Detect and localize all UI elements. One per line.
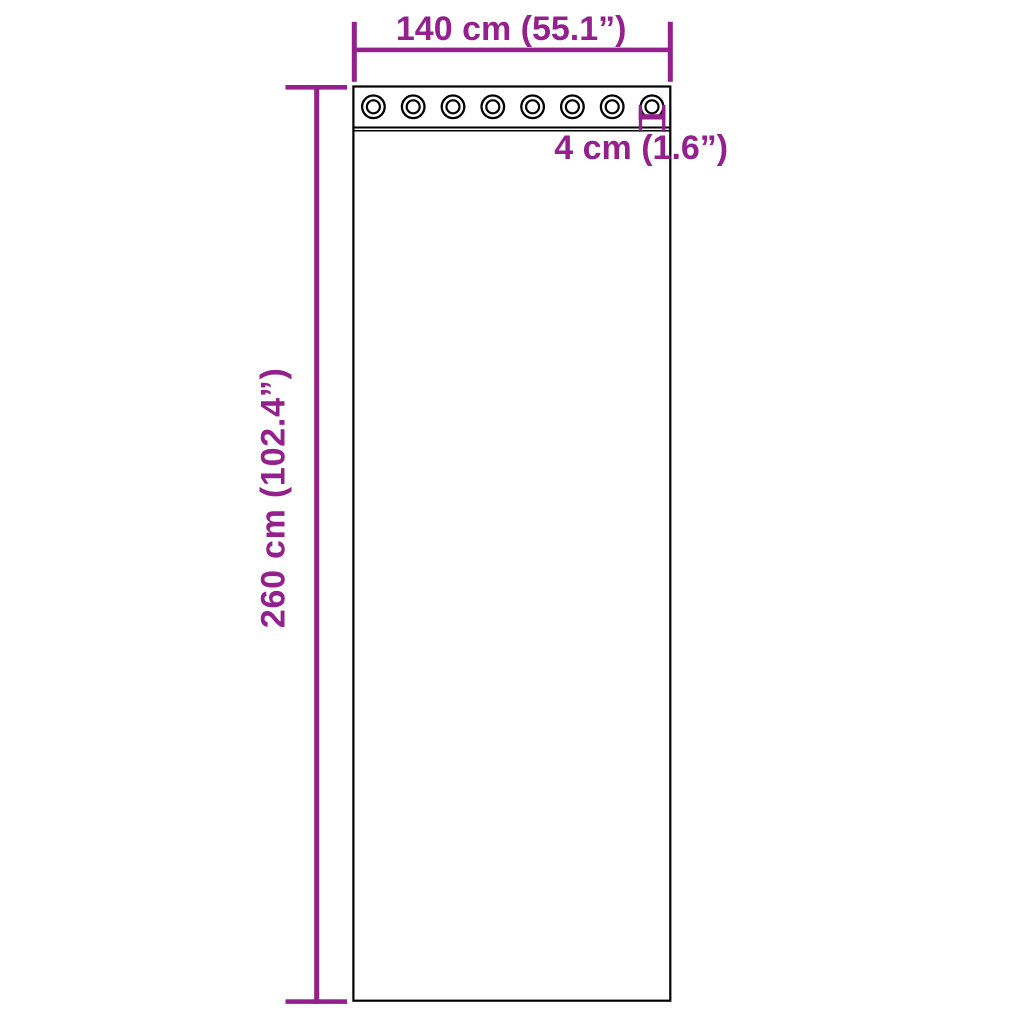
svg-text:4 cm (1.6”): 4 cm (1.6”)	[554, 129, 728, 167]
svg-text:260 cm (102.4”): 260 cm (102.4”)	[255, 367, 293, 628]
svg-text:140 cm (55.1”): 140 cm (55.1”)	[396, 10, 627, 48]
